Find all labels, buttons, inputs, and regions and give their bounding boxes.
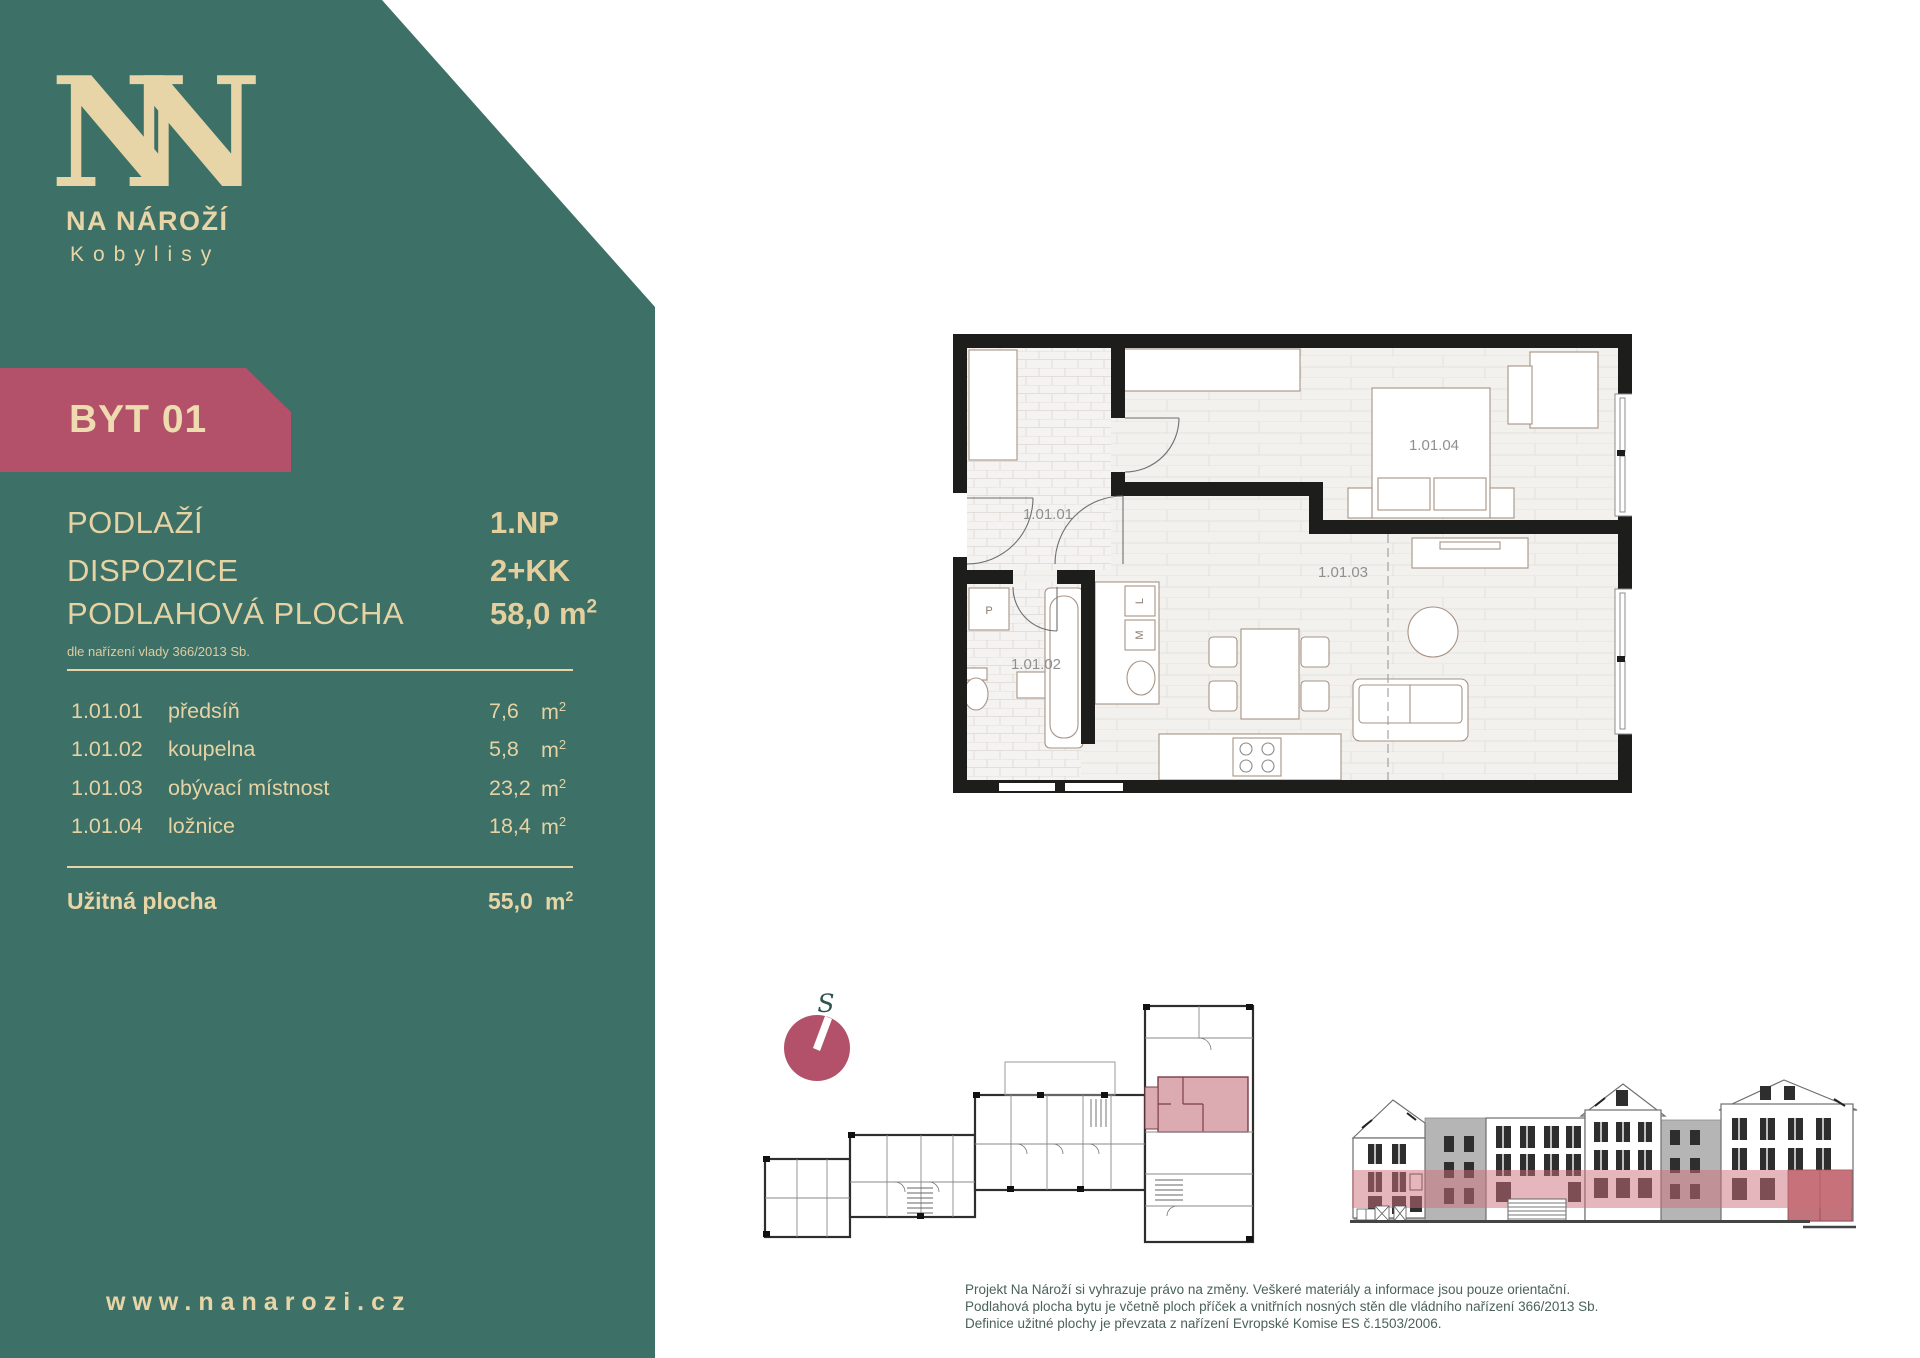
bed-pillow bbox=[1434, 478, 1486, 510]
room-row: 1.01.03 obývací místnost 23,2 m2 bbox=[0, 776, 655, 806]
unit-badge: BYT 01 bbox=[0, 368, 291, 472]
brand-subtitle: Kobylisy bbox=[70, 243, 220, 267]
bedroom-wardrobe bbox=[1122, 349, 1300, 391]
room-name: ložnice bbox=[168, 814, 235, 839]
summary-value: 1.NP bbox=[490, 505, 559, 541]
hall-closet bbox=[969, 350, 1017, 460]
brand-logo-monogram: NN bbox=[50, 0, 196, 208]
room-row: 1.01.04 ložnice 18,4 m2 bbox=[0, 814, 655, 844]
dining-table bbox=[1241, 629, 1299, 719]
disclaimer-line: Definice užitné plochy je převzata z nař… bbox=[965, 1315, 1655, 1332]
elevation-highlight-band bbox=[1352, 1170, 1852, 1208]
bedroom-shelf bbox=[1508, 366, 1532, 424]
bed-pillow bbox=[1378, 478, 1430, 510]
room-area: 23,2 bbox=[489, 776, 531, 801]
stove bbox=[1233, 738, 1281, 776]
page-root: { "brand": { "monogram": "NN", "name": "… bbox=[0, 0, 1920, 1358]
summary-label: PODLAHOVÁ PLOCHA bbox=[67, 596, 404, 632]
divider bbox=[67, 669, 573, 671]
brand-name: NA NÁROŽÍ bbox=[66, 206, 229, 237]
dishwasher-label: M bbox=[1134, 630, 1146, 639]
summary-note: dle nařízení vlady 366/2013 Sb. bbox=[67, 644, 250, 659]
entrance-canopy bbox=[1508, 1199, 1566, 1221]
room-area-unit: m2 bbox=[541, 814, 566, 840]
chair bbox=[1209, 637, 1237, 667]
room-code: 1.01.02 bbox=[71, 737, 143, 762]
summary-row-floor: PODLAŽÍ 1.NP bbox=[0, 505, 655, 543]
room-area: 5,8 bbox=[489, 737, 519, 762]
disclaimer-line: Podlahová plocha bytu je včetně ploch př… bbox=[965, 1298, 1655, 1315]
summary-label: DISPOZICE bbox=[67, 553, 239, 589]
total-area-unit: m2 bbox=[545, 888, 573, 916]
window bbox=[1615, 394, 1632, 516]
room-code: 1.01.04 bbox=[71, 814, 143, 839]
room-label-bath: 1.01.02 bbox=[1011, 656, 1061, 673]
room-row: 1.01.01 předsíň 7,6 m2 bbox=[0, 699, 655, 729]
room-name: koupelna bbox=[168, 737, 255, 762]
room-area-unit: m2 bbox=[541, 776, 566, 802]
balcony-outline bbox=[1005, 1062, 1115, 1095]
summary-label: PODLAŽÍ bbox=[67, 505, 203, 541]
room-code: 1.01.03 bbox=[71, 776, 143, 801]
building-elevation bbox=[1348, 1078, 1858, 1236]
kitchen-sink bbox=[1127, 661, 1155, 695]
room-area-unit: m2 bbox=[541, 699, 566, 725]
toilet-bowl bbox=[964, 678, 988, 710]
room-area-unit: m2 bbox=[541, 737, 566, 763]
unit-badge-label: BYT 01 bbox=[69, 398, 207, 442]
summary-row-layout: DISPOZICE 2+KK bbox=[0, 553, 655, 591]
divider bbox=[67, 866, 573, 868]
room-label-bedroom: 1.01.04 bbox=[1409, 437, 1459, 454]
chair bbox=[1301, 637, 1329, 667]
room-area: 7,6 bbox=[489, 699, 519, 724]
washer-label: P bbox=[985, 605, 992, 617]
window bbox=[1615, 589, 1632, 734]
round-table bbox=[1408, 607, 1458, 657]
room-label-living: 1.01.03 bbox=[1318, 564, 1368, 581]
room-name: předsíň bbox=[168, 699, 240, 724]
chair bbox=[1301, 681, 1329, 711]
site-plan-highlight-unit bbox=[1145, 1077, 1248, 1132]
floor-plan: P L M bbox=[953, 334, 1632, 793]
total-label: Užitná plocha bbox=[67, 888, 217, 915]
nightstand bbox=[1348, 488, 1372, 518]
disclaimer-line: Projekt Na Nároží si vyhrazuje právo na … bbox=[965, 1281, 1655, 1298]
summary-value: 2+KK bbox=[490, 553, 570, 589]
room-name: obývací místnost bbox=[168, 776, 329, 801]
tv bbox=[1440, 542, 1500, 549]
website-url: www.nanarozi.cz bbox=[106, 1288, 412, 1317]
nightstand bbox=[1490, 488, 1514, 518]
chair bbox=[1209, 681, 1237, 711]
sidebar: NN NA NÁROŽÍ Kobylisy BYT 01 PODLAŽÍ 1.N… bbox=[0, 0, 655, 1358]
disclaimer: Projekt Na Nároží si vyhrazuje právo na … bbox=[965, 1281, 1655, 1332]
ground-line bbox=[1350, 1222, 1856, 1228]
summary-value: 58,0 m2 bbox=[490, 596, 597, 632]
total-area: 55,0 bbox=[488, 888, 533, 915]
summary-row-floor-area: PODLAHOVÁ PLOCHA 58,0 m2 bbox=[0, 596, 655, 634]
room-code: 1.01.01 bbox=[71, 699, 143, 724]
room-label-hall: 1.01.01 bbox=[1023, 506, 1073, 523]
site-plan bbox=[757, 1002, 1257, 1254]
total-row: Užitná plocha 55,0 m2 bbox=[0, 888, 655, 920]
bedroom-desk bbox=[1530, 352, 1598, 428]
room-row: 1.01.02 koupelna 5,8 m2 bbox=[0, 737, 655, 767]
room-area: 18,4 bbox=[489, 814, 531, 839]
fridge-label: L bbox=[1134, 598, 1146, 604]
